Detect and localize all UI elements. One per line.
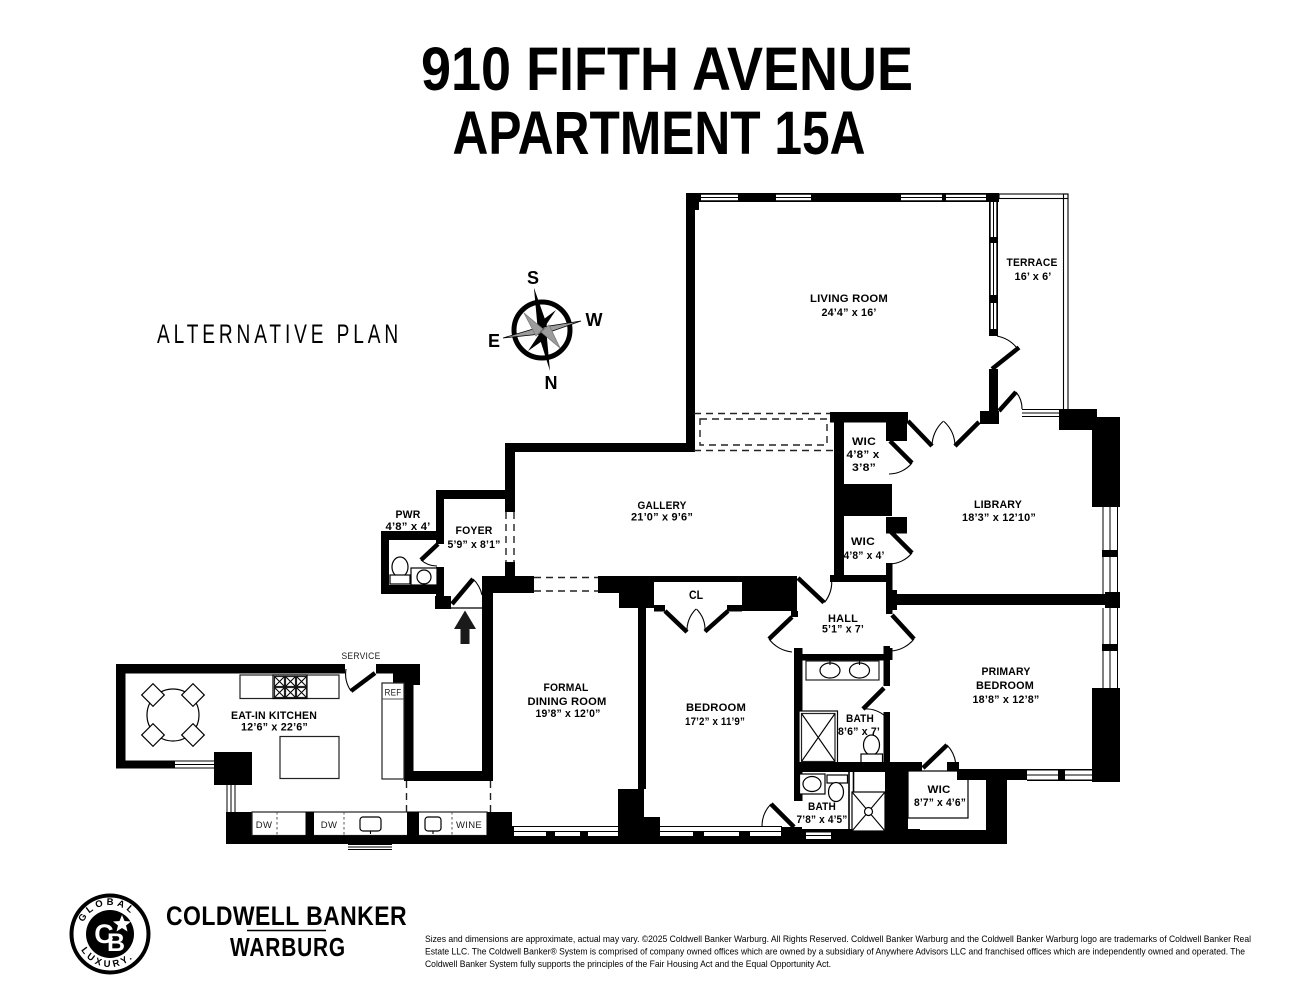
svg-text:BATH: BATH [808, 801, 836, 813]
svg-text:DINING ROOM: DINING ROOM [528, 696, 607, 708]
svg-text:WIC: WIC [851, 536, 875, 548]
svg-text:BEDROOM: BEDROOM [976, 680, 1034, 692]
svg-text:TERRACE: TERRACE [1007, 257, 1058, 269]
svg-text:WARBURG: WARBURG [230, 932, 346, 962]
svg-text:S: S [527, 268, 539, 288]
svg-text:WIC: WIC [928, 784, 951, 796]
svg-text:E: E [488, 331, 500, 351]
svg-text:Estate LLC. The Coldwell Banke: Estate LLC. The Coldwell Banker® System … [425, 946, 1245, 957]
svg-text:CL: CL [689, 590, 703, 602]
svg-text:12’6” x 22’6”: 12’6” x 22’6” [241, 722, 308, 734]
svg-text:GALLERY: GALLERY [638, 500, 687, 512]
svg-text:W: W [586, 310, 603, 330]
svg-text:19’8” x 12’0”: 19’8” x 12’0” [536, 708, 601, 720]
svg-text:DW: DW [256, 820, 272, 831]
svg-text:BATH: BATH [846, 713, 874, 725]
svg-text:4’8” x: 4’8” x [847, 449, 880, 461]
svg-text:18’8” x 12’8”: 18’8” x 12’8” [973, 694, 1040, 706]
svg-text:5’1” x 7’: 5’1” x 7’ [822, 624, 864, 636]
svg-text:18’3” x 12’10”: 18’3” x 12’10” [962, 512, 1036, 524]
svg-text:FORMAL: FORMAL [544, 682, 589, 694]
svg-text:WIC: WIC [852, 436, 876, 448]
svg-text:4’8” x 4’: 4’8” x 4’ [844, 550, 885, 562]
svg-text:7’8” x 4’5”: 7’8” x 4’5” [797, 814, 848, 826]
svg-text:LIVING ROOM: LIVING ROOM [810, 293, 888, 305]
svg-text:N: N [545, 373, 558, 393]
svg-text:21’0” x 9’6”: 21’0” x 9’6” [631, 512, 693, 524]
svg-text:COLDWELL BANKER: COLDWELL BANKER [166, 901, 407, 931]
svg-text:ALTERNATIVE PLAN: ALTERNATIVE PLAN [157, 319, 402, 349]
svg-text:SERVICE: SERVICE [342, 651, 381, 662]
svg-text:REF: REF [385, 688, 402, 699]
svg-text:Coldwell Banker System fully s: Coldwell Banker System fully supports th… [425, 958, 831, 969]
svg-text:APARTMENT 15A: APARTMENT 15A [453, 99, 866, 167]
svg-text:910 FIFTH AVENUE: 910 FIFTH AVENUE [421, 35, 913, 103]
svg-text:8’7” x 4’6”: 8’7” x 4’6” [914, 797, 966, 809]
svg-text:DW: DW [321, 820, 337, 831]
svg-text:BEDROOM: BEDROOM [686, 702, 746, 714]
svg-text:3’8”: 3’8” [852, 462, 876, 474]
svg-text:5’9” x 8’1”: 5’9” x 8’1” [448, 539, 501, 551]
svg-text:24’4” x 16’: 24’4” x 16’ [822, 307, 877, 319]
svg-text:17’2” x 11’9”: 17’2” x 11’9” [685, 716, 745, 728]
svg-text:PRIMARY: PRIMARY [982, 666, 1031, 678]
svg-text:16’ x 6’: 16’ x 6’ [1015, 271, 1052, 283]
svg-text:Sizes and dimensions are appro: Sizes and dimensions are approximate, ac… [425, 933, 1251, 944]
svg-text:PWR: PWR [396, 509, 421, 521]
svg-text:EAT-IN KITCHEN: EAT-IN KITCHEN [231, 710, 317, 722]
svg-text:WINE: WINE [456, 820, 482, 831]
svg-text:B: B [107, 929, 124, 957]
svg-text:LIBRARY: LIBRARY [974, 499, 1022, 511]
svg-text:FOYER: FOYER [456, 525, 493, 537]
